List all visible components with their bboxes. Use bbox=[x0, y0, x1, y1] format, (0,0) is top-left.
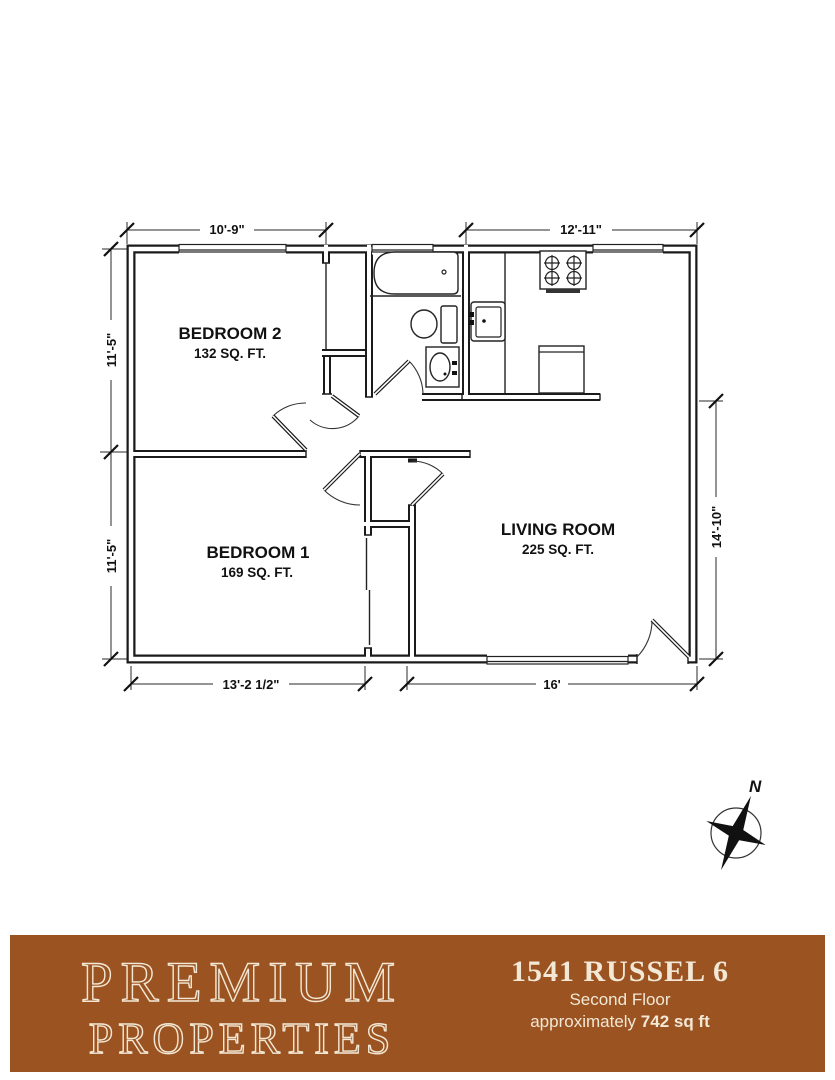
compass-icon: N bbox=[691, 777, 780, 882]
kitchen-sink-icon bbox=[469, 302, 505, 341]
approx-line: approximately 742 sq ft bbox=[455, 1011, 785, 1033]
brand-logo: PREMIUM PROPERTIES bbox=[32, 941, 462, 1069]
dim-left-lower: 11'-5" bbox=[104, 539, 119, 574]
room-label-bedroom-2: BEDROOM 2 132 SQ. FT. bbox=[179, 324, 282, 361]
bathtub-icon bbox=[374, 252, 458, 294]
dim-top-left: 10'-9" bbox=[209, 222, 244, 237]
stove-icon bbox=[540, 251, 586, 293]
room-label-bedroom-1: BEDROOM 1 169 SQ. FT. bbox=[207, 543, 310, 580]
room-area: 132 SQ. FT. bbox=[194, 346, 266, 361]
brand-line1: PREMIUM bbox=[81, 951, 403, 1014]
compass-north-label: N bbox=[749, 777, 762, 796]
room-name: BEDROOM 2 bbox=[179, 324, 282, 343]
brand-line2: PROPERTIES bbox=[89, 1014, 396, 1063]
dim-bottom-right: 16' bbox=[543, 677, 561, 692]
doors bbox=[273, 361, 689, 657]
address-line: 1541 RUSSEL 6 bbox=[455, 955, 785, 989]
dim-left-upper: 11'-5" bbox=[104, 333, 119, 368]
floor-plan: 10'-9" 12'-11" 11'-5" 11'-5" 14'-10" 13'… bbox=[0, 0, 835, 930]
room-label-living-room: LIVING ROOM 225 SQ. FT. bbox=[501, 520, 615, 557]
address-block: 1541 RUSSEL 6 Second Floor approximately… bbox=[455, 955, 785, 1033]
bathroom-sink-icon bbox=[426, 347, 459, 387]
dim-top-right: 12'-11" bbox=[560, 222, 602, 237]
area-value: 742 sq ft bbox=[641, 1012, 710, 1031]
room-area: 169 SQ. FT. bbox=[221, 565, 293, 580]
area-prefix: approximately bbox=[530, 1012, 641, 1031]
brand-bar: PREMIUM PROPERTIES 1541 RUSSEL 6 Second … bbox=[10, 935, 825, 1072]
room-name: LIVING ROOM bbox=[501, 520, 615, 539]
walls bbox=[131, 245, 693, 659]
toilet-icon bbox=[411, 306, 457, 343]
page: 10'-9" 12'-11" 11'-5" 11'-5" 14'-10" 13'… bbox=[0, 0, 835, 1080]
dim-right-side: 14'-10" bbox=[709, 506, 724, 549]
floor-line: Second Floor bbox=[455, 989, 785, 1011]
room-name: BEDROOM 1 bbox=[207, 543, 310, 562]
dim-bottom-left: 13'-2 1/2" bbox=[223, 677, 280, 692]
room-area: 225 SQ. FT. bbox=[522, 542, 594, 557]
refrigerator-icon bbox=[539, 346, 584, 393]
